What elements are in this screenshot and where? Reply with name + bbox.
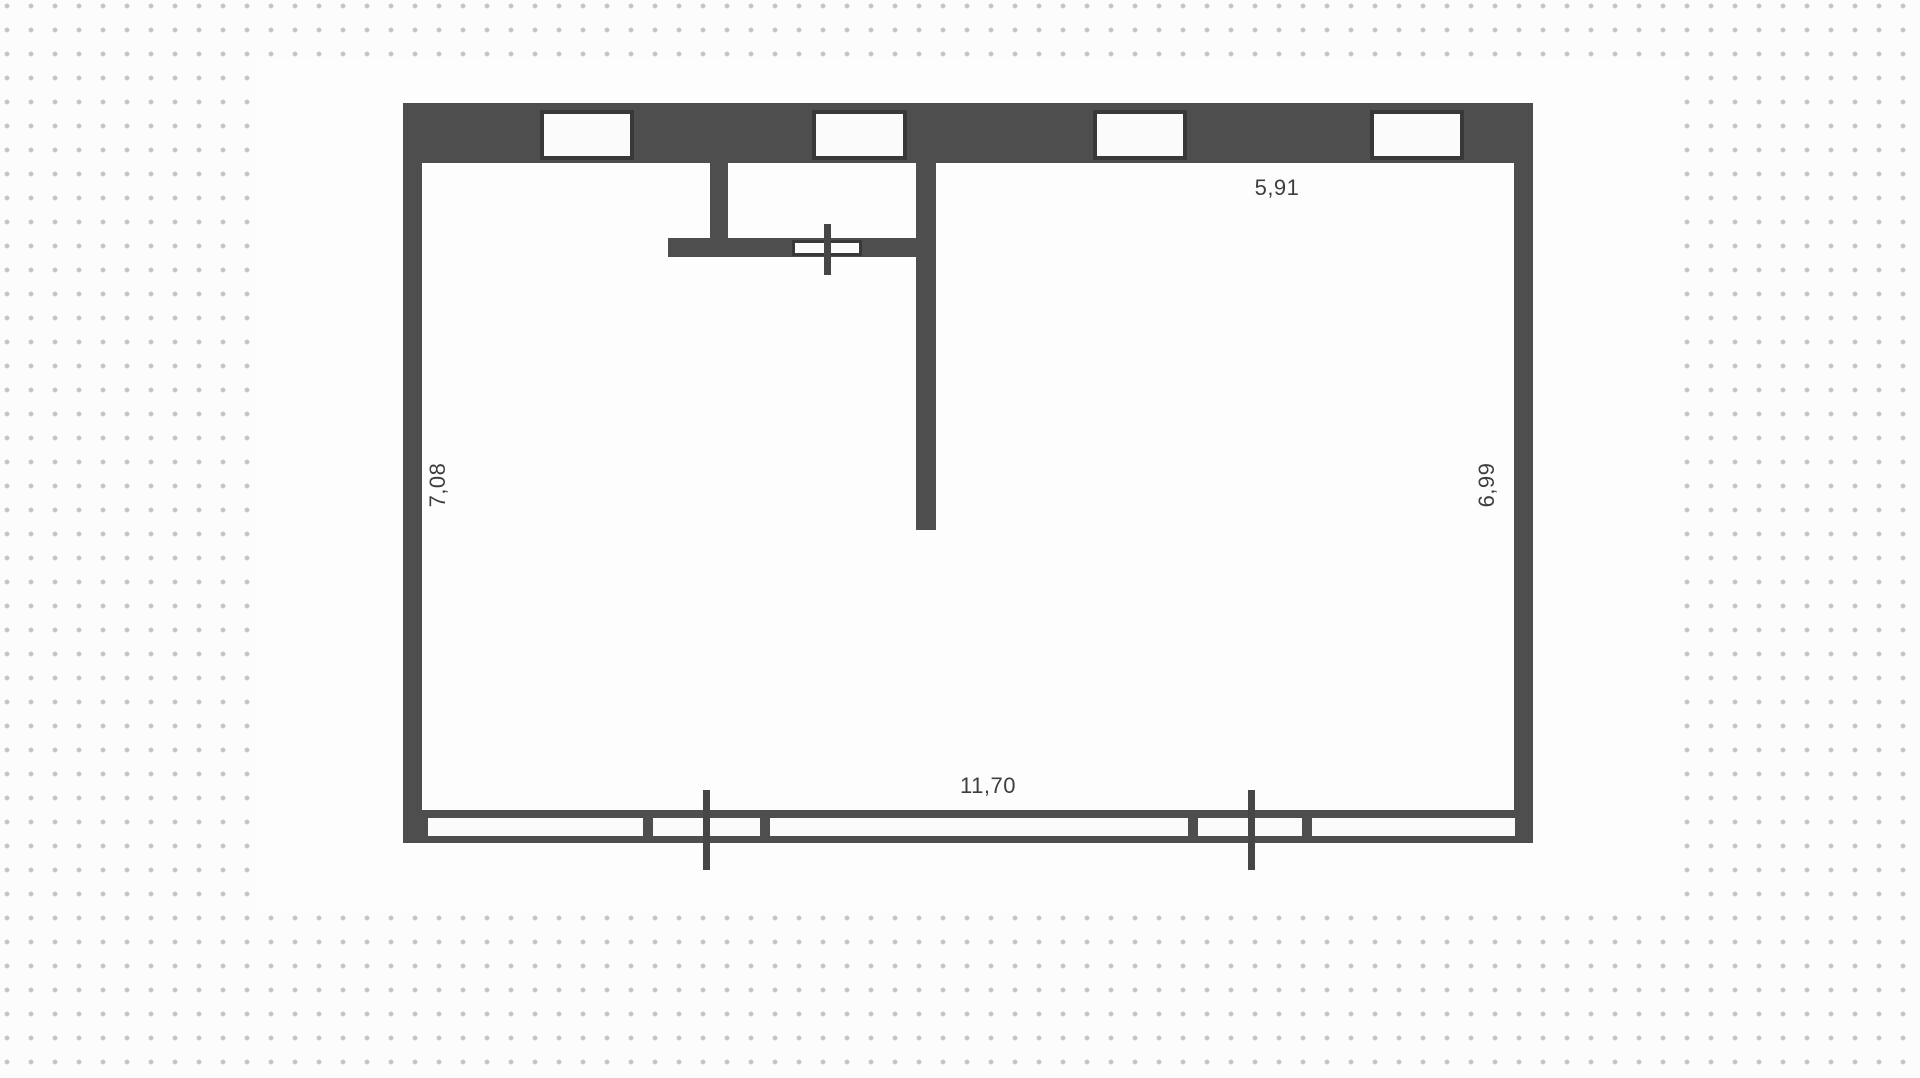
drawing-canvas[interactable]: 5,91 7,08 6,99 11,70 <box>258 60 1680 912</box>
window-top-1[interactable] <box>540 110 634 160</box>
window-mullion-3 <box>1188 818 1198 836</box>
dimension-label-bottom: 11,70 <box>960 773 1016 799</box>
window-top-2[interactable] <box>812 110 907 160</box>
opening-cross-marker-interior-icon[interactable] <box>824 224 831 275</box>
dimension-label-top: 5,91 <box>1255 175 1300 201</box>
window-mullion-4 <box>1302 818 1312 836</box>
wall-left[interactable] <box>403 103 422 843</box>
interior-wall-vertical-long[interactable] <box>916 163 936 530</box>
bottom-window-strip[interactable] <box>428 818 1515 836</box>
opening-cross-marker-bottom-right-icon[interactable] <box>1248 790 1255 870</box>
window-mullion-1 <box>643 818 653 836</box>
opening-cross-marker-bottom-left-icon[interactable] <box>703 790 710 870</box>
interior-wall-vertical-stub[interactable] <box>710 163 728 238</box>
window-top-3[interactable] <box>1093 110 1187 160</box>
dimension-label-left: 7,08 <box>425 463 451 508</box>
dimension-label-right: 6,99 <box>1474 463 1500 508</box>
editor-dot-grid-background: 5,91 7,08 6,99 11,70 <box>0 0 1920 1078</box>
window-top-4[interactable] <box>1370 110 1464 160</box>
wall-right[interactable] <box>1514 103 1533 843</box>
floor-plan: 5,91 7,08 6,99 11,70 <box>403 103 1533 843</box>
window-mullion-2 <box>760 818 770 836</box>
